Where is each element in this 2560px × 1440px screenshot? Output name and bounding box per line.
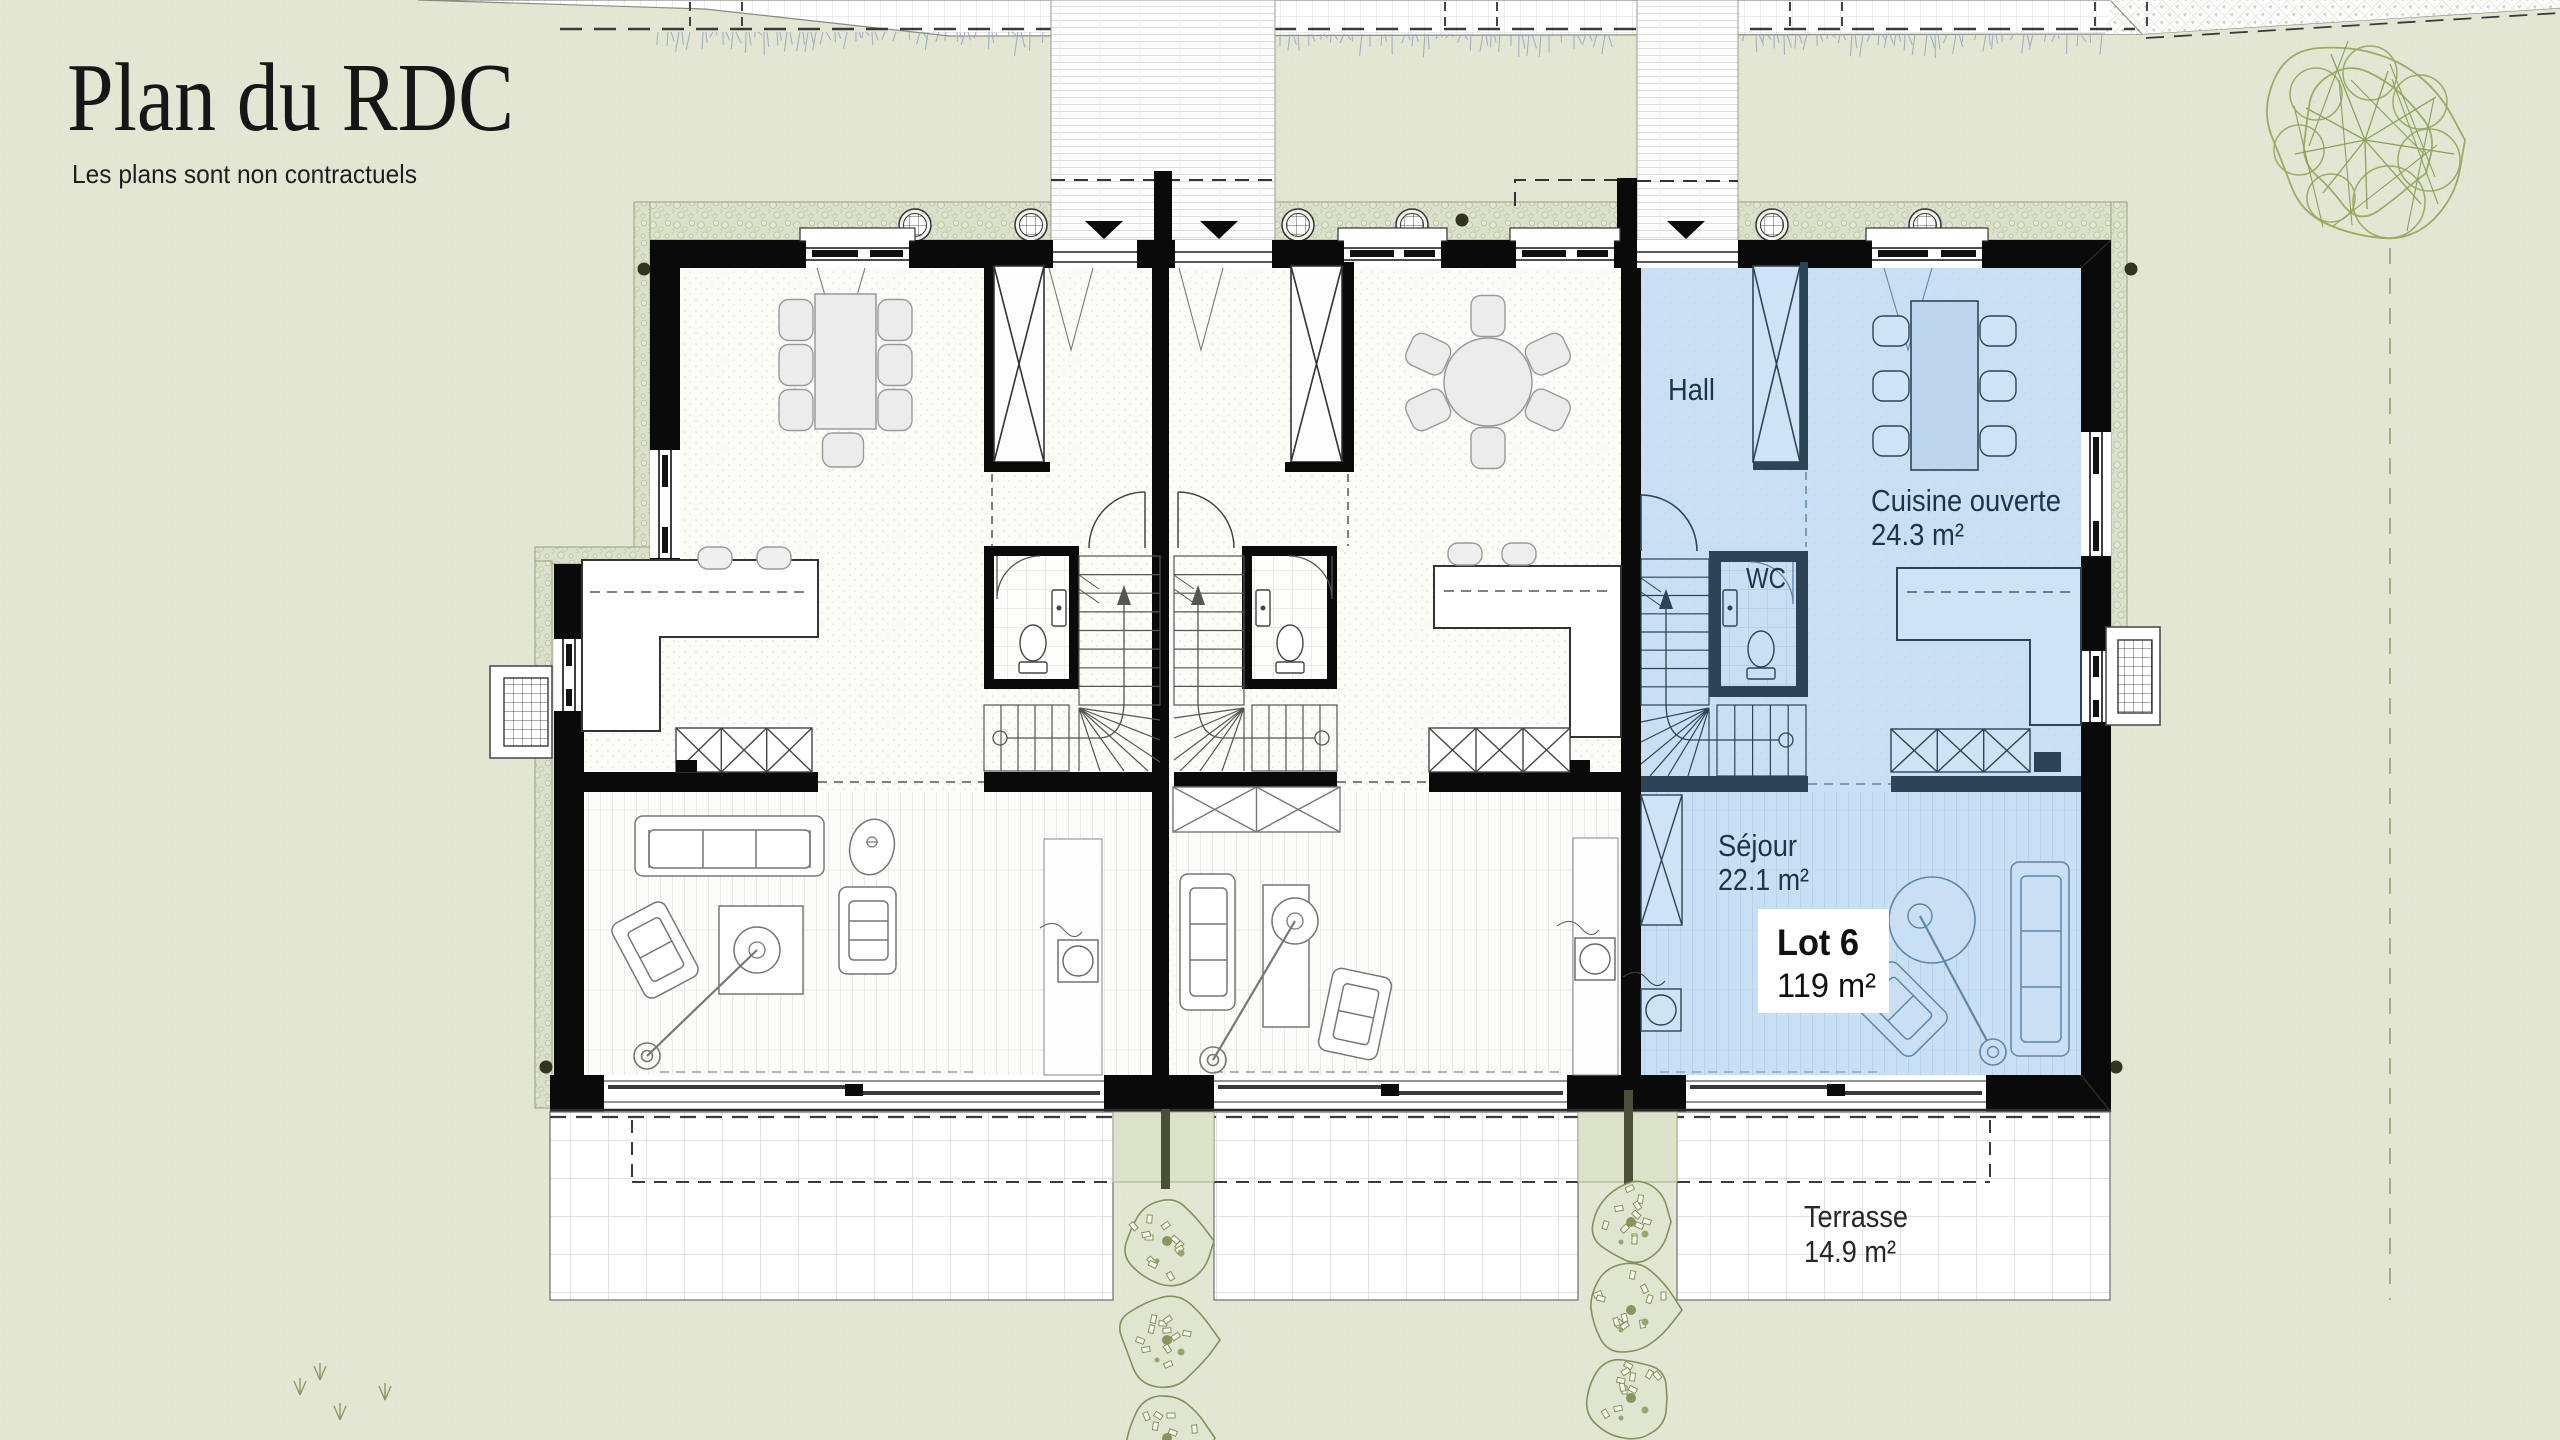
svg-text:Hall: Hall [1668, 372, 1715, 407]
svg-text:119 m²: 119 m² [1777, 967, 1876, 1005]
svg-text:Les plans sont non contractuel: Les plans sont non contractuels [72, 159, 417, 189]
svg-text:22.1 m²: 22.1 m² [1718, 862, 1809, 897]
svg-text:Plan du RDC: Plan du RDC [67, 44, 514, 151]
svg-text:WC: WC [1746, 563, 1786, 595]
svg-text:Lot 6: Lot 6 [1777, 922, 1859, 963]
svg-text:24.3 m²: 24.3 m² [1871, 517, 1964, 552]
svg-text:14.9 m²: 14.9 m² [1804, 1234, 1896, 1269]
svg-text:Séjour: Séjour [1718, 828, 1797, 863]
svg-text:Cuisine ouverte: Cuisine ouverte [1871, 483, 2061, 518]
svg-text:Terrasse: Terrasse [1804, 1199, 1908, 1234]
